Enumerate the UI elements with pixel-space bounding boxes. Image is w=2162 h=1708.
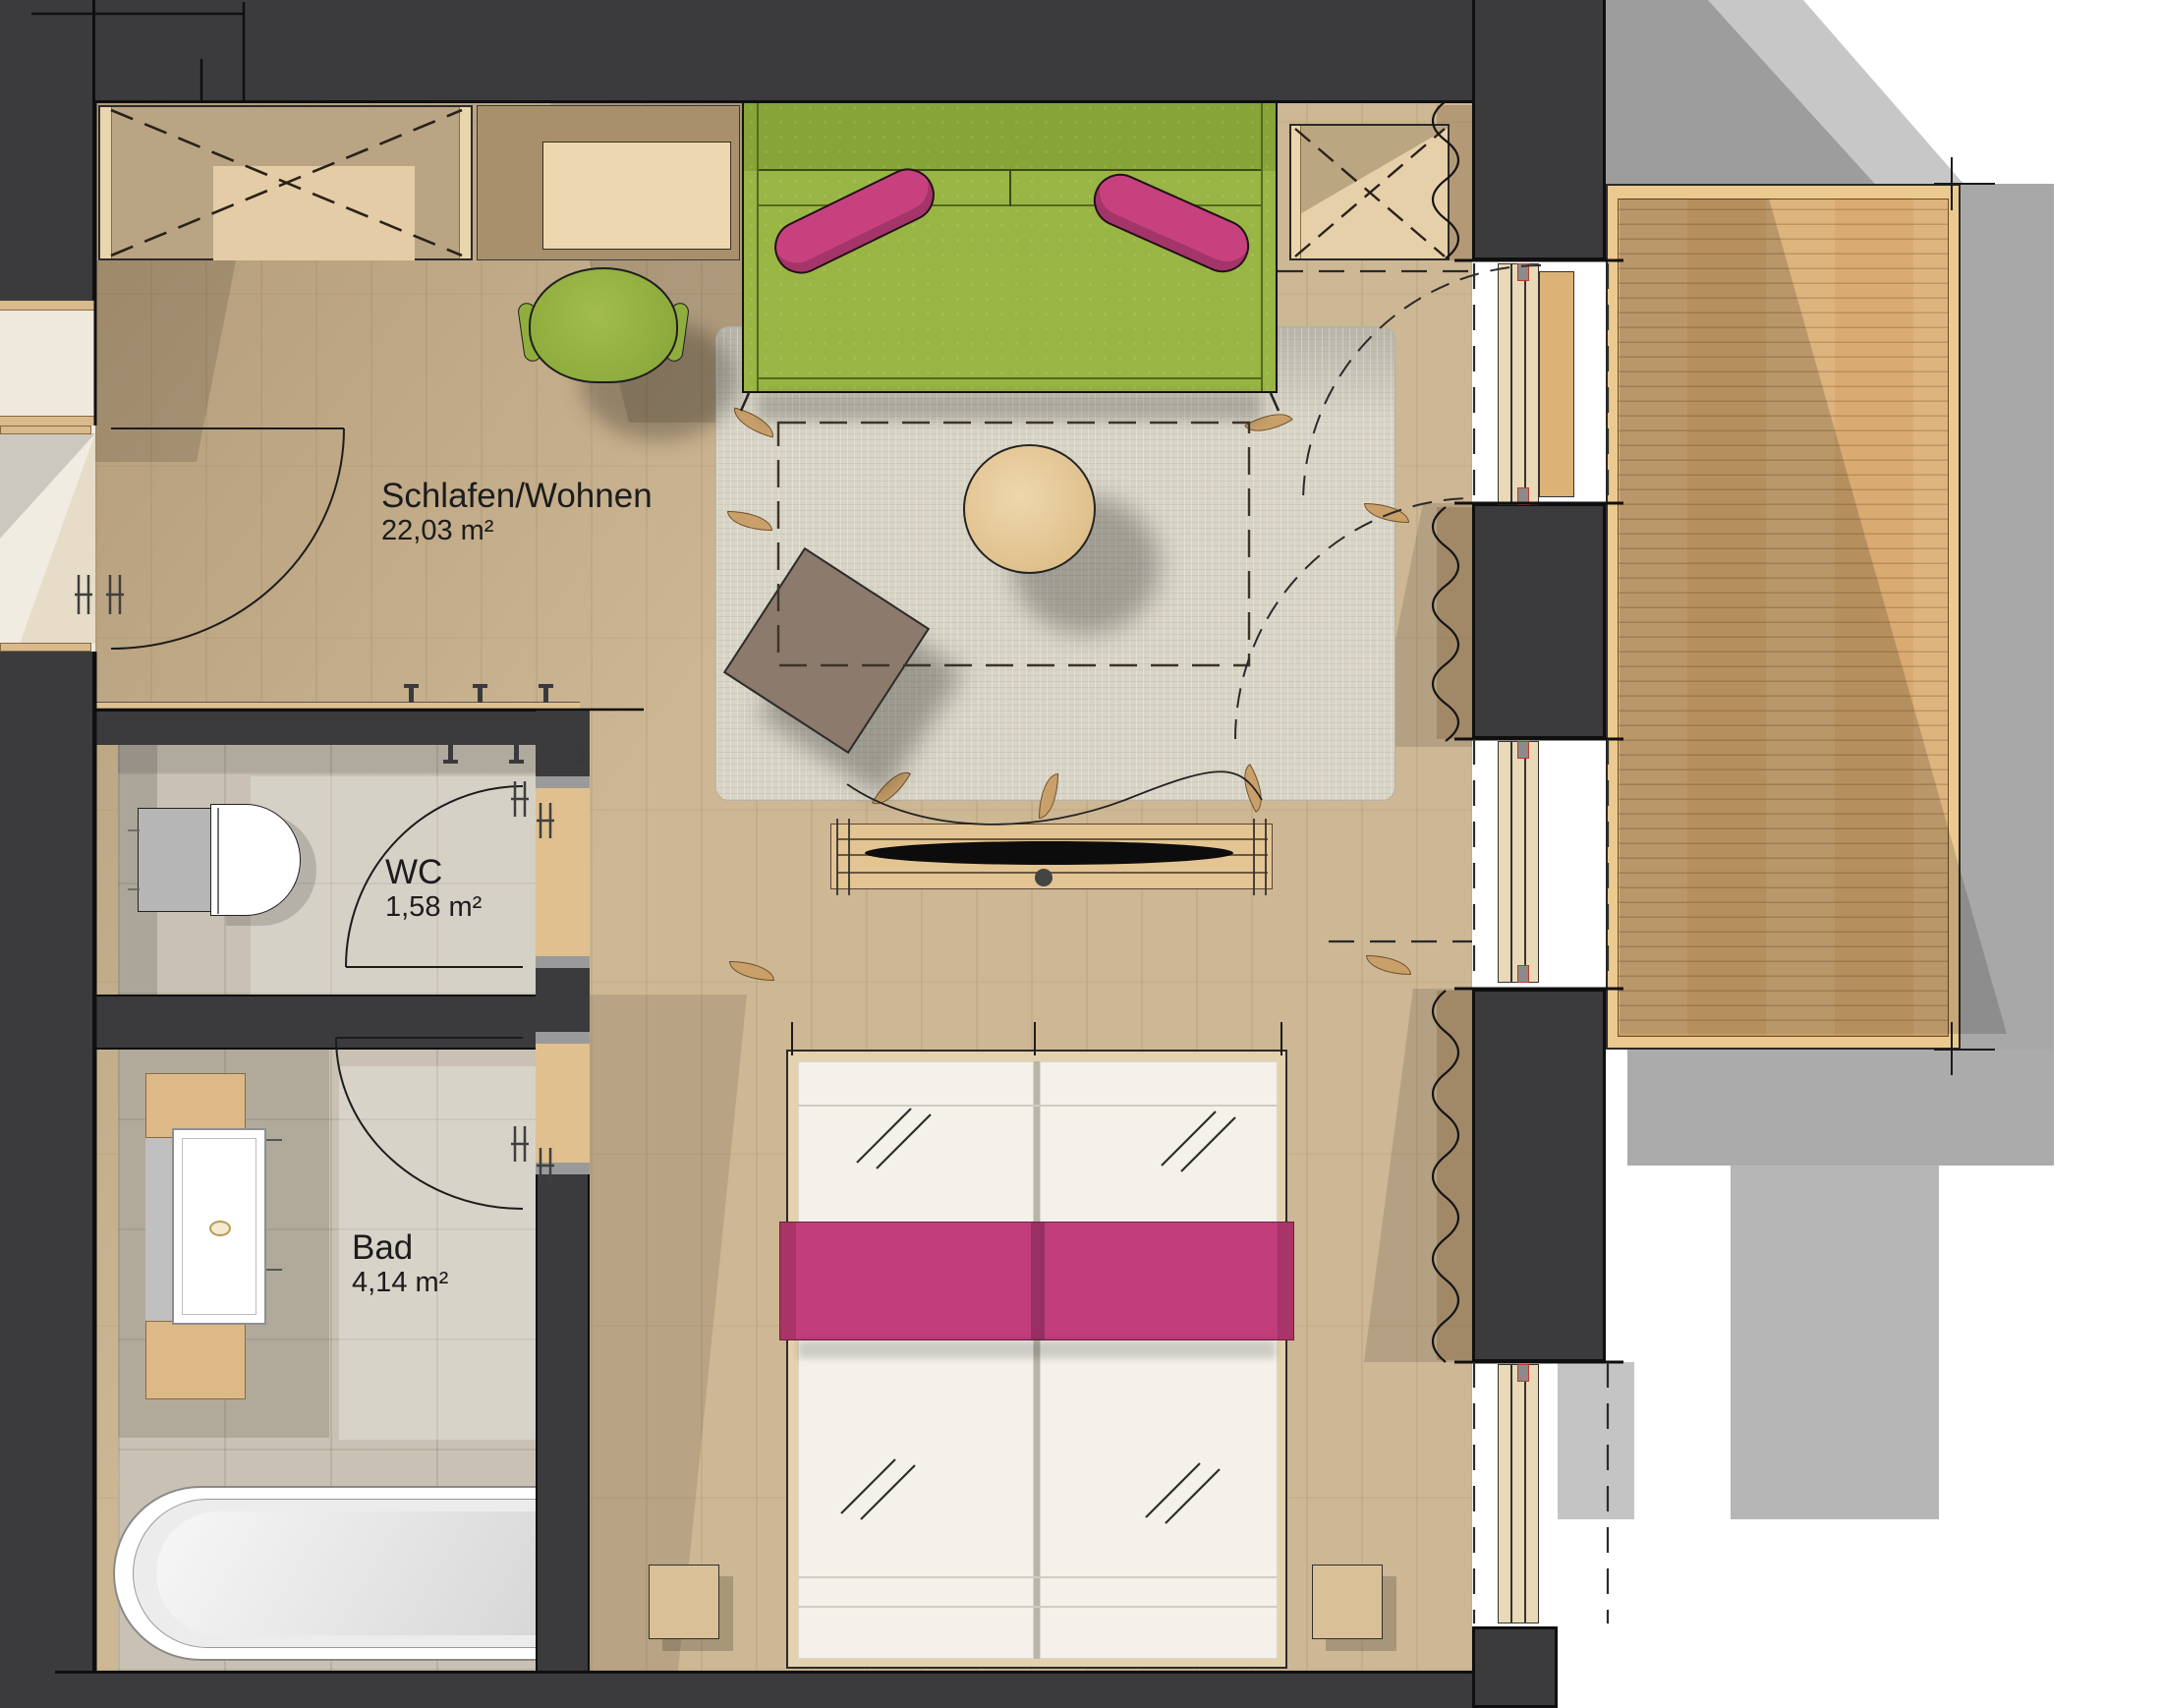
window-bottom-frame (1498, 1364, 1539, 1623)
wall-bottom (55, 1671, 1558, 1708)
nightstand-left (649, 1565, 719, 1639)
room-label-wc: WC 1,58 m² (385, 853, 482, 924)
wall-left-upper (0, 0, 95, 301)
wall-bath-right-1 (536, 710, 590, 776)
wall-wc-top (95, 710, 590, 745)
bed-runner (779, 1222, 1294, 1340)
desk-chair (529, 267, 678, 383)
vanity-wood-lower (145, 1321, 246, 1399)
reveal-mark (1517, 487, 1529, 505)
tv-screen (865, 841, 1233, 865)
washbasin (172, 1128, 266, 1325)
balcony-decking (1618, 199, 1949, 1037)
bathtub (113, 1486, 565, 1661)
room-name: Schlafen/Wohnen (381, 477, 653, 515)
reveal-mark (1517, 1364, 1529, 1382)
desk-top (542, 142, 731, 250)
tv-knob (1035, 869, 1053, 886)
basin-drain (209, 1221, 231, 1236)
pier-bottom-corner (1472, 1626, 1558, 1708)
pier-middle (1472, 503, 1606, 739)
cabinet-right (1289, 124, 1450, 260)
sofa-shadow (759, 393, 1261, 421)
wall-wc-bad-divider (95, 995, 590, 1050)
reveal-mark (1517, 741, 1529, 759)
mattress-right (1040, 1061, 1278, 1659)
pier-lower (1472, 989, 1606, 1362)
bed-runner-shadow (798, 1340, 1276, 1358)
wardrobe (98, 105, 473, 260)
coffee-table (963, 444, 1096, 574)
wall-left-lower (0, 652, 95, 1708)
balcony-door-leaf (1539, 271, 1574, 497)
bad-door-threshold (536, 1032, 590, 1174)
toilet-tank (138, 808, 214, 912)
room-label-bad: Bad 4,14 m² (352, 1228, 448, 1299)
entrance-niche (0, 426, 95, 652)
room-label-schlafen-wohnen: Schlafen/Wohnen 22,03 m² (381, 477, 653, 547)
balcony-door-frame (1498, 263, 1539, 505)
window-middle-frame (1498, 741, 1539, 983)
wall-bath-right-3 (536, 1174, 590, 1671)
bed (786, 1050, 1287, 1669)
room-area: 1,58 m² (385, 891, 482, 923)
floor-plan: Schlafen/Wohnen 22,03 m² WC 1,58 m² Bad … (0, 0, 2162, 1708)
mattress-left (798, 1061, 1034, 1659)
wall-bath-right-2 (536, 968, 590, 1032)
room-name: Bad (352, 1228, 448, 1267)
reveal-mark (1517, 263, 1529, 281)
left-window-niche (0, 301, 95, 426)
pier-top (1472, 0, 1606, 260)
room-name: WC (385, 853, 482, 891)
wc-door-threshold (536, 776, 590, 968)
room-area: 4,14 m² (352, 1267, 448, 1298)
wall-top (0, 0, 1476, 103)
reveal-mark (1517, 965, 1529, 983)
wc-wall-top-strip (95, 702, 580, 710)
desk-counter (477, 105, 740, 260)
balcony (1606, 184, 1961, 1050)
nightstand-right (1312, 1565, 1383, 1639)
room-area: 22,03 m² (381, 515, 653, 546)
